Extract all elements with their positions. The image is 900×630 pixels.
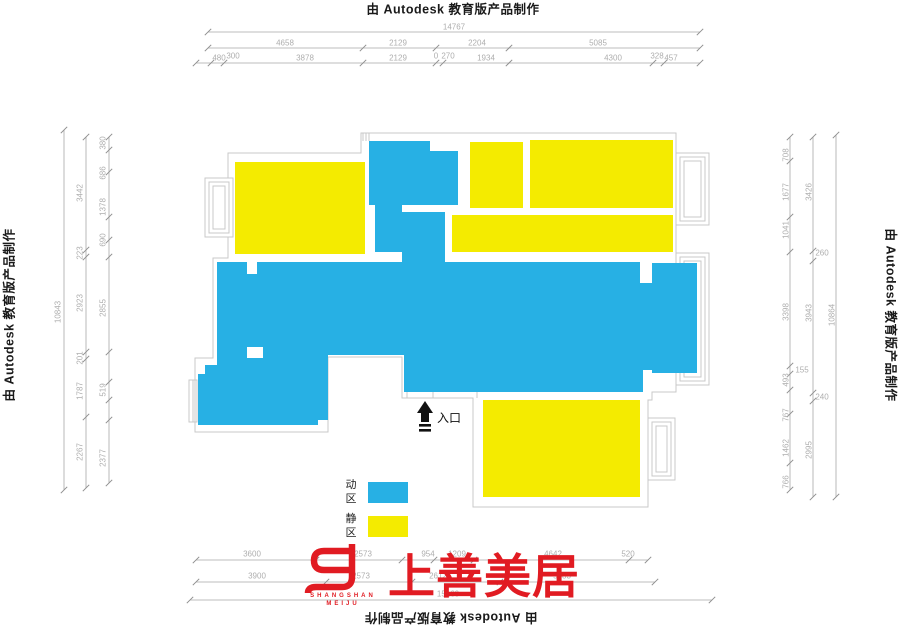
dim-label: 1677 [782, 183, 791, 201]
autodesk-stamp-top: 由 Autodesk 教育版产品制作 [367, 0, 540, 18]
dim-label: 2267 [76, 443, 85, 461]
logo-text-latin1: SHANGSHAN [304, 593, 382, 599]
dim-label: 480 [212, 54, 225, 63]
dim-label: 380 [99, 136, 108, 149]
quiet-room-bottom-right [483, 400, 640, 497]
dim-label: 223 [76, 246, 85, 259]
bay-window-left-top [205, 178, 233, 237]
company-logo: 上善美居 SHANGSHAN MEIJU [296, 536, 556, 616]
dim-label: 4658 [276, 39, 294, 48]
dim-label: 2377 [99, 449, 108, 467]
dim-label: 328 [650, 52, 663, 61]
window-left-bottom [189, 380, 197, 422]
dim-label: 3442 [76, 184, 85, 202]
dim-label: 2129 [389, 54, 407, 63]
dim-label: 1041 [782, 221, 791, 239]
dim-label: 201 [76, 351, 85, 364]
dim-label: 708 [782, 148, 791, 161]
dim-label: 0 [434, 52, 438, 61]
active-zone-hall-mid [375, 205, 445, 262]
dim-label: 270 [441, 52, 454, 61]
quiet-room-band [452, 215, 673, 252]
dim-label: 3900 [248, 572, 266, 581]
dim-label: 300 [226, 52, 239, 61]
autodesk-stamp-right: 由 Autodesk 教育版产品制作 [883, 229, 900, 402]
logo-text-cn: 上善美居 [388, 538, 580, 607]
dim-label: 240 [815, 393, 828, 402]
dim-label: 1378 [99, 198, 108, 216]
dim-label: 2129 [389, 39, 407, 48]
quiet-room-top-left [235, 162, 365, 254]
dim-label: 155 [795, 366, 808, 375]
dim-label: 1934 [477, 54, 495, 63]
logo-text-latin2: MEIJU [304, 601, 382, 607]
dim-label: 686 [99, 166, 108, 179]
dim-label: 457 [664, 54, 677, 63]
dim-label: 690 [99, 233, 108, 246]
dim-label: 3878 [296, 54, 314, 63]
active-zone-hall-upper [369, 141, 458, 205]
dim-label: 2923 [76, 294, 85, 312]
dim-label: 2204 [468, 39, 486, 48]
dim-label: 3600 [243, 550, 261, 559]
dim-label: 3426 [805, 183, 814, 201]
dim-label: 3943 [805, 304, 814, 322]
dim-label: 1787 [76, 382, 85, 400]
dim-label: 14767 [443, 23, 465, 32]
legend-label-active: 动区 [344, 479, 358, 507]
dim-label: 766 [782, 475, 791, 488]
entrance-label: 入口 [437, 409, 461, 426]
quiet-room-top-right [530, 140, 673, 208]
dim-label: 767 [782, 408, 791, 421]
bay-window-right-top [676, 153, 709, 225]
autodesk-stamp-left: 由 Autodesk 教育版产品制作 [0, 229, 18, 402]
quiet-room-top-small [470, 142, 523, 208]
dim-label: 4300 [604, 54, 622, 63]
dim-label: 10843 [54, 301, 63, 323]
entrance-arrow-icon [417, 401, 433, 432]
dim-label: 5085 [589, 39, 607, 48]
dim-label: 10864 [828, 304, 837, 326]
dim-label: 2855 [99, 299, 108, 317]
dim-label: 3398 [782, 303, 791, 321]
dim-label: 1462 [782, 439, 791, 457]
balcony-bottom-right [648, 418, 675, 480]
dim-label: 260 [815, 249, 828, 258]
cad-floorplan-sheet: 由 Autodesk 教育版产品制作 由 Autodesk 教育版产品制作 由 … [0, 0, 900, 630]
legend-swatch-quiet [368, 516, 408, 537]
dim-label: 519 [99, 383, 108, 396]
dim-label: 520 [621, 550, 634, 559]
dim-label: 2995 [805, 441, 814, 459]
dim-label: 493 [782, 373, 791, 386]
legend-swatch-active [368, 482, 408, 503]
